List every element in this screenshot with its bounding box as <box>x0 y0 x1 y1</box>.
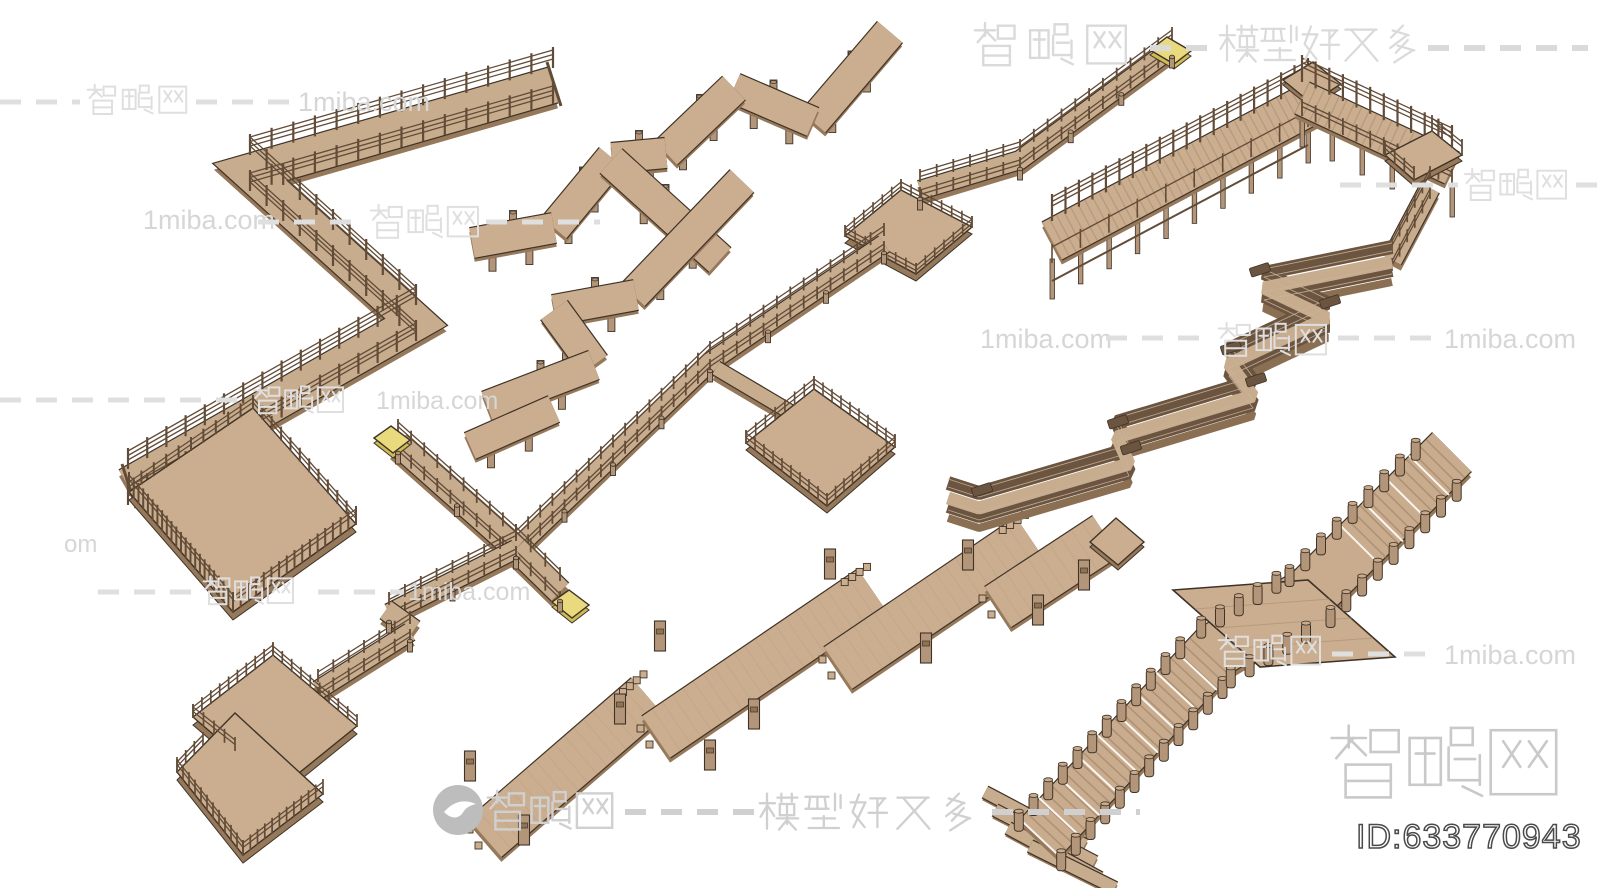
svg-text:1miba.com: 1miba.com <box>408 578 530 606</box>
svg-text:1miba.com: 1miba.com <box>143 205 275 235</box>
svg-text:ID:633770943: ID:633770943 <box>1356 818 1582 856</box>
svg-text:1miba.com: 1miba.com <box>1444 324 1576 354</box>
svg-text:1miba.com: 1miba.com <box>376 387 498 415</box>
svg-text:1miba.com: 1miba.com <box>980 324 1112 354</box>
svg-text:om: om <box>64 531 97 558</box>
svg-text:1miba.com: 1miba.com <box>1444 640 1576 670</box>
svg-text:1miba.com: 1miba.com <box>298 87 430 117</box>
